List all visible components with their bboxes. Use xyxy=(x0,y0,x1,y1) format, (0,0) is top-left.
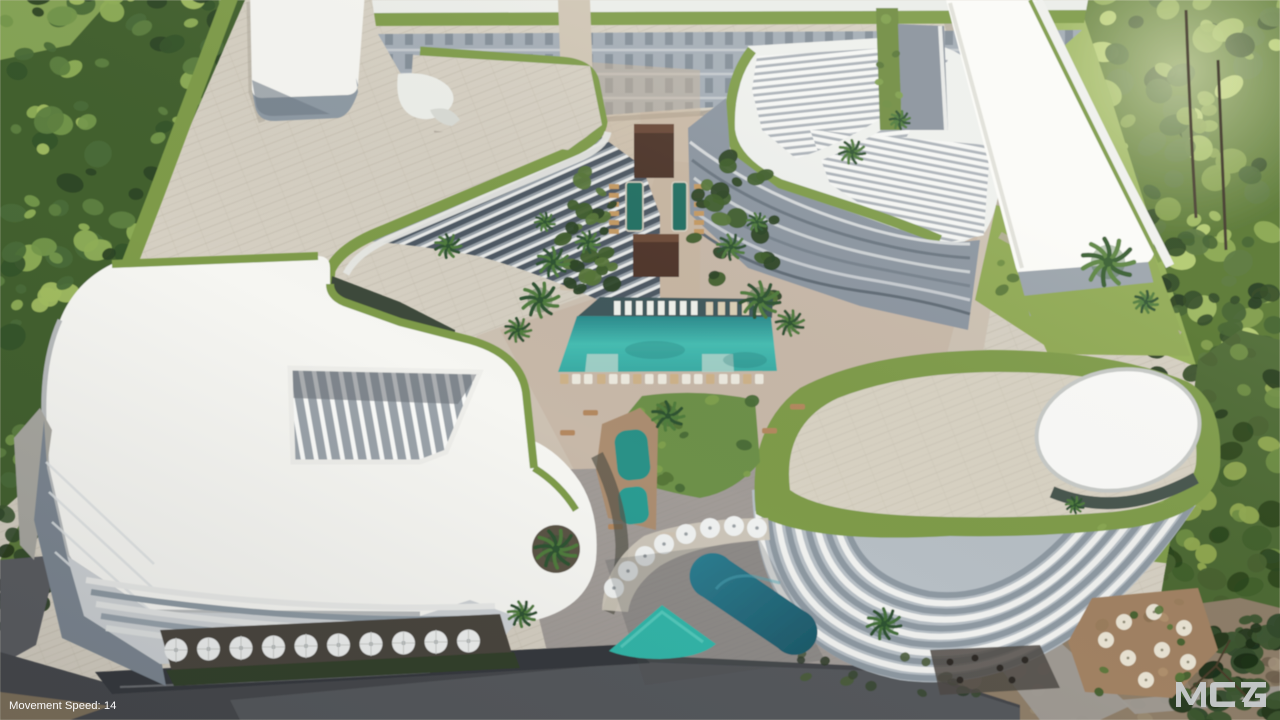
svg-text:Movement Speed: 14: Movement Speed: 14 xyxy=(9,700,116,712)
